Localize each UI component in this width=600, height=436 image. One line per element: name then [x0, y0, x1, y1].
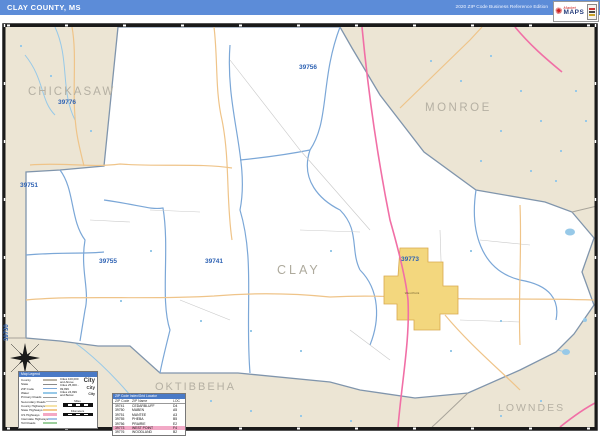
legend-swatch — [45, 405, 57, 408]
legend-swatch — [43, 379, 57, 382]
marketmaps-logo: ✺ Market MAPS — [553, 1, 599, 22]
legend-swatch — [43, 388, 57, 390]
map-page: CLAY COUNTY, MS 2020 ZIP Code Business R… — [0, 0, 600, 436]
logo-edition-badge — [587, 4, 597, 20]
legend-city-items: Cities 100,000 and AboveCity Cities 25,0… — [60, 378, 95, 425]
legend-swatch — [46, 401, 57, 402]
legend-swatch — [43, 422, 57, 425]
title-bar: CLAY COUNTY, MS 2020 ZIP Code Business R… — [0, 0, 600, 15]
table-row: 39776WOODLANDB2 — [113, 430, 185, 434]
zip-label-39730: 39730 — [4, 324, 10, 341]
legend-item: Toll Roads — [21, 421, 57, 425]
scale-bar-miles: Miles — [60, 399, 95, 407]
zip-label-39741: 39741 — [205, 258, 223, 265]
legend-swatch — [43, 413, 57, 416]
county-label-monroe: MONROE — [425, 102, 492, 114]
zip-label-39773: 39773 — [401, 256, 419, 263]
zip-label-39776: 39776 — [58, 99, 76, 106]
zip-label-39755: 39755 — [99, 258, 117, 265]
city-label-west-point: West Point — [405, 291, 419, 295]
logo-maps-text: MAPS — [564, 10, 585, 17]
logo-text: Market MAPS — [564, 6, 585, 17]
edition-label: 2020 ZIP Code Business Reference Edition — [456, 5, 548, 10]
legend-line-items: County State ZIP Code Water Primary Road… — [21, 378, 57, 425]
scale-bar-kilometers: Kilometers — [60, 409, 95, 417]
county-label-chickasaw: CHICKASAW — [28, 86, 115, 98]
legend-swatch — [48, 418, 57, 421]
county-label-lowndes: LOWNDES — [498, 402, 565, 414]
legend-swatch — [43, 384, 57, 386]
county-label-clay: CLAY — [277, 263, 321, 277]
legend-swatch — [43, 392, 57, 394]
zip-label-39751: 39751 — [20, 182, 38, 189]
county-label-oktibbeha: OKTIBBEHA — [155, 381, 236, 393]
map-legend: Map Legend County State ZIP Code Water P… — [18, 371, 98, 429]
page-title: CLAY COUNTY, MS — [7, 3, 81, 12]
compass-rose — [8, 341, 42, 375]
zip-label-39756: 39756 — [299, 64, 317, 71]
legend-swatch — [43, 397, 57, 398]
legend-city-item: Cities 24,999 and BelowCity — [60, 391, 95, 397]
logo-swirl-icon: ✺ — [555, 7, 563, 16]
legend-swatch — [43, 409, 57, 412]
zip-index-table: ZIP Code Index/Grid Locator ZIP Code ZIP… — [112, 393, 186, 436]
